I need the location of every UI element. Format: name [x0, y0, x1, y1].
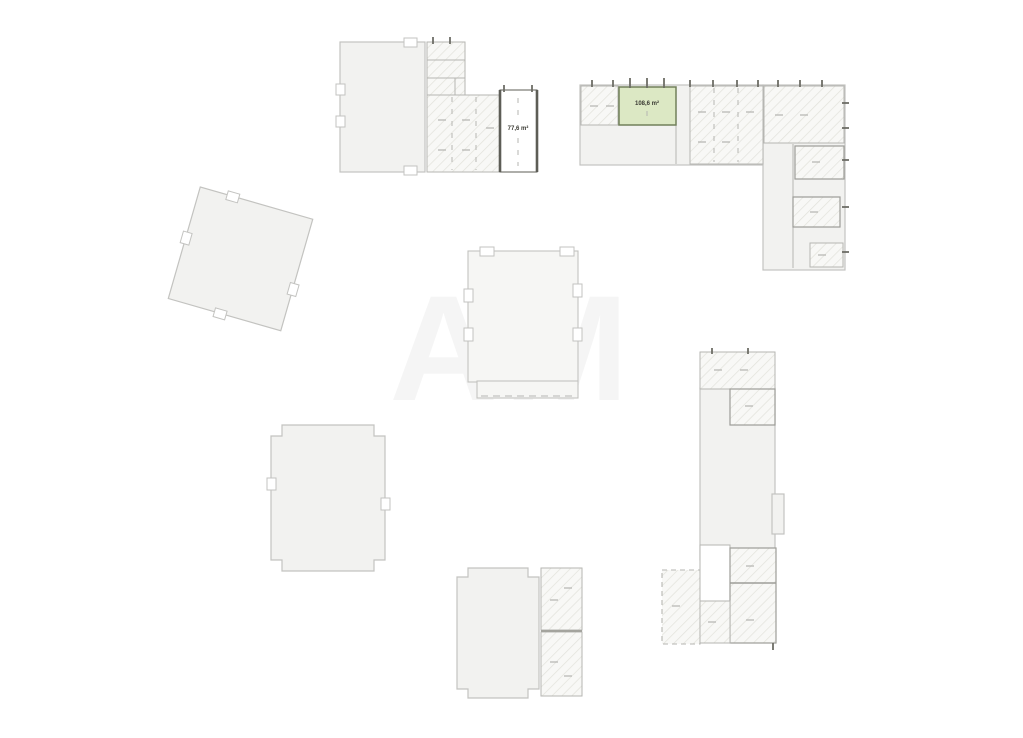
building-a-footprint: [340, 42, 425, 172]
building-g: [662, 348, 784, 650]
building-d-terrace: [477, 381, 578, 398]
building-f: [457, 568, 582, 698]
building-f-footprint: [457, 568, 539, 698]
building-d: [464, 247, 582, 398]
building-a: [336, 38, 425, 175]
unit-area-label-108: 108,6 m²: [635, 100, 659, 107]
building-d-footprint: [468, 251, 578, 382]
building-c: [163, 182, 319, 337]
unit-available-108[interactable]: 108,6 m²: [619, 87, 676, 125]
building-c-footprint: [168, 187, 312, 331]
site-plan-svg: AM: [0, 0, 1023, 738]
building-e: [267, 425, 390, 571]
unit-outlined-77[interactable]: 77,6 m²: [500, 85, 537, 172]
building-b: 108,6 m²: [580, 78, 849, 270]
unit-area-label-77: 77,6 m²: [508, 125, 529, 132]
building-a-units-hatched: [427, 37, 500, 172]
site-plan: AM: [0, 0, 1023, 738]
building-e-footprint: [271, 425, 385, 571]
